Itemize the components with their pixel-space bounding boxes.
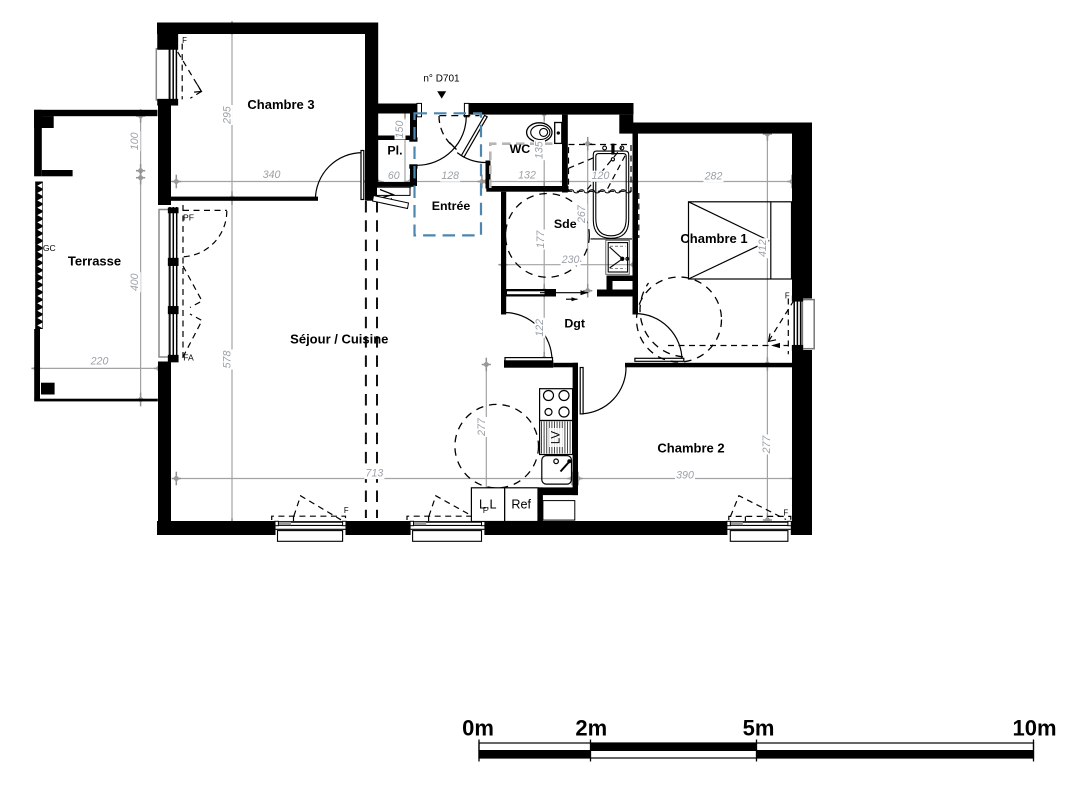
svg-text:267: 267	[576, 204, 588, 224]
svg-text:390: 390	[676, 470, 694, 482]
svg-text:412: 412	[757, 239, 769, 257]
svg-text:F: F	[785, 292, 790, 301]
svg-text:150: 150	[394, 121, 406, 139]
svg-text:282: 282	[704, 171, 723, 183]
svg-text:F: F	[783, 509, 788, 518]
svg-text:128: 128	[441, 170, 459, 182]
svg-text:400: 400	[129, 273, 141, 291]
svg-text:10m: 10m	[1012, 716, 1056, 741]
svg-text:177: 177	[535, 230, 547, 249]
svg-text:Ref: Ref	[511, 498, 531, 512]
svg-text:132: 132	[518, 170, 536, 182]
svg-text:Chambre 3: Chambre 3	[247, 97, 314, 112]
svg-text:FA: FA	[183, 353, 194, 363]
svg-text:60: 60	[388, 170, 400, 182]
svg-text:LV: LV	[550, 431, 562, 445]
svg-text:100: 100	[129, 132, 141, 150]
svg-text:135: 135	[534, 141, 546, 159]
svg-text:F: F	[344, 506, 349, 515]
svg-text:Sde: Sde	[554, 217, 577, 231]
svg-text:Pl.: Pl.	[387, 143, 402, 157]
svg-text:Dgt: Dgt	[564, 316, 585, 330]
svg-text:295: 295	[221, 106, 233, 125]
svg-text:277: 277	[761, 435, 773, 455]
svg-text:Terrasse: Terrasse	[68, 253, 121, 268]
svg-text:n° D701: n° D701	[423, 74, 460, 85]
svg-text:277: 277	[476, 417, 488, 437]
svg-text:L,L: L,L	[479, 498, 497, 512]
svg-text:Séjour / Cuisine: Séjour / Cuisine	[290, 331, 388, 346]
svg-text:578: 578	[222, 351, 234, 369]
svg-text:PF: PF	[183, 213, 194, 223]
svg-text:Chambre 2: Chambre 2	[657, 441, 724, 456]
svg-text:340: 340	[263, 169, 281, 181]
svg-text:Chambre 1: Chambre 1	[680, 231, 747, 246]
svg-text:120: 120	[592, 170, 610, 182]
svg-text:Entrée: Entrée	[432, 199, 471, 213]
svg-text:713: 713	[366, 468, 384, 480]
svg-text:F: F	[182, 36, 187, 45]
svg-text:122: 122	[534, 319, 546, 337]
svg-text:2m: 2m	[575, 716, 607, 741]
svg-text:0m: 0m	[462, 716, 494, 741]
svg-text:5m: 5m	[743, 716, 775, 741]
svg-text:F: F	[483, 506, 488, 515]
svg-text:GC: GC	[43, 243, 56, 253]
svg-text:WC: WC	[510, 142, 531, 156]
svg-text:220: 220	[90, 356, 109, 368]
svg-text:230: 230	[561, 254, 580, 266]
